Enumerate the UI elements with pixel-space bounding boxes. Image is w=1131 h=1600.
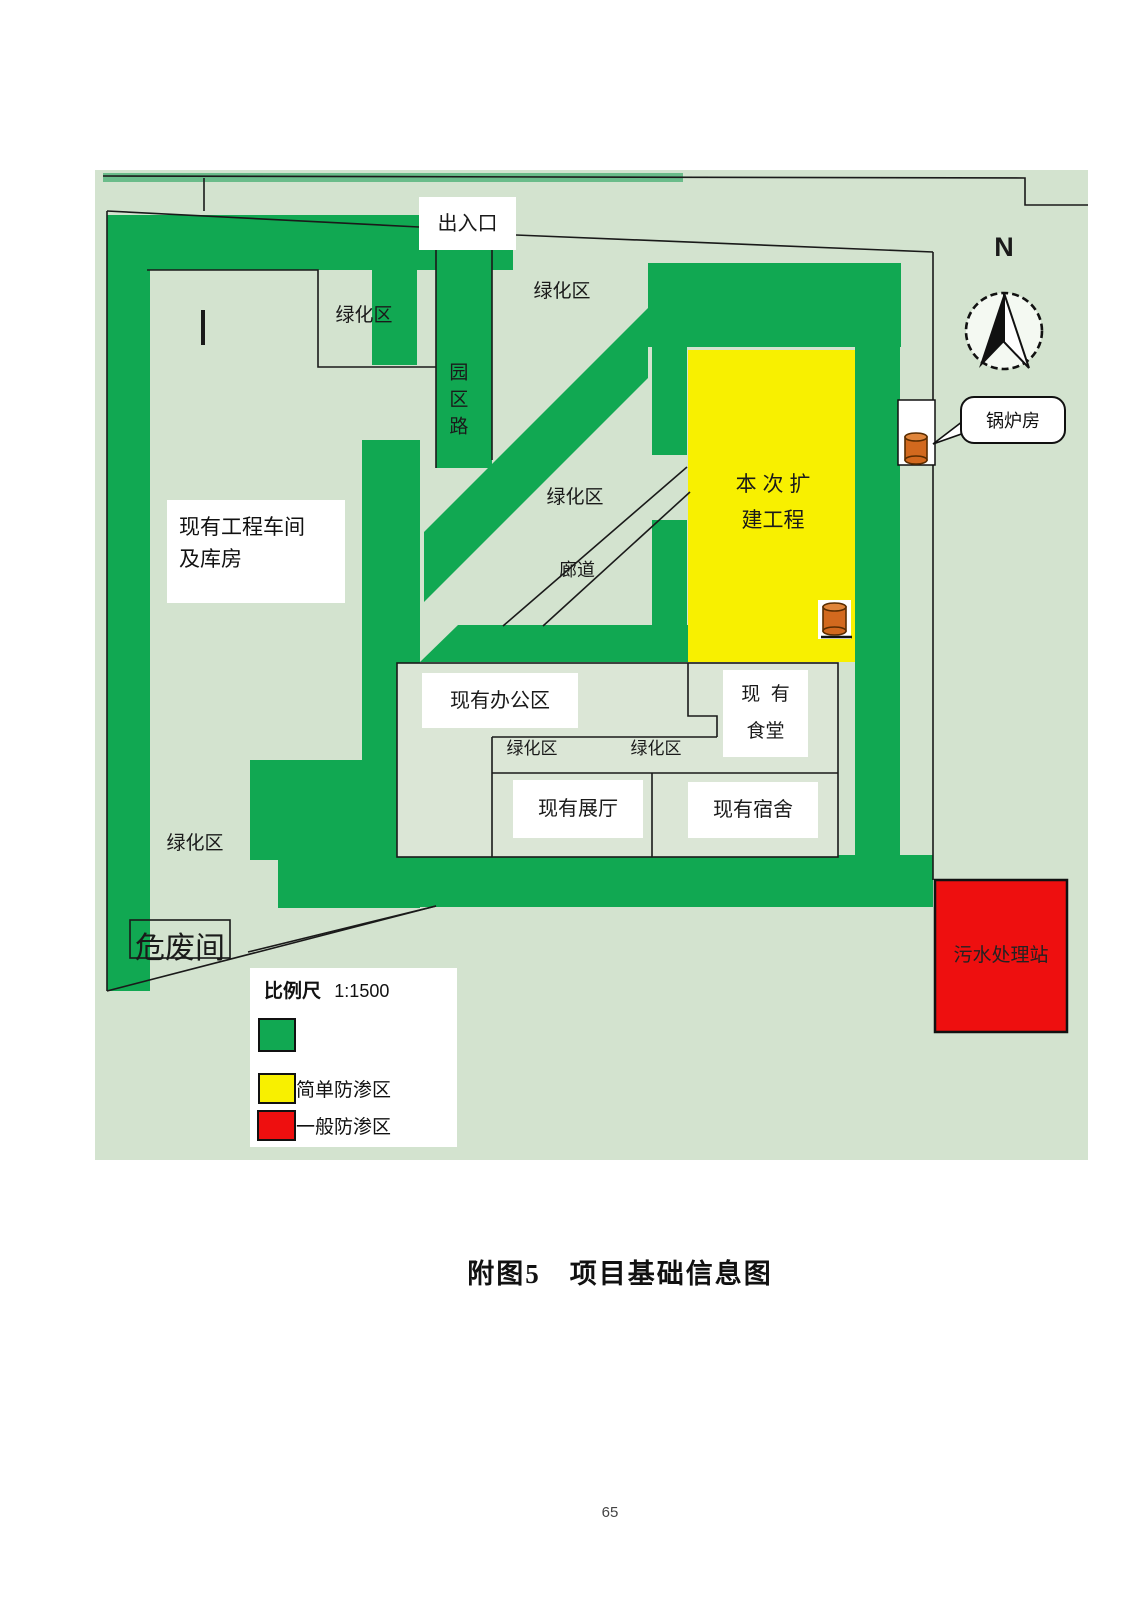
- boiler-tank-bottom: [905, 456, 927, 464]
- green-area-label-row-right: 绿化区: [619, 738, 693, 760]
- legend-red-swatch: [257, 1110, 296, 1141]
- legend-scale-label: 比例尺: [264, 981, 321, 1002]
- workshop-label-line1: 现有工程车间: [179, 512, 345, 544]
- green-area-label-topmid: 绿化区: [523, 280, 601, 304]
- canteen-label: 现 有 食堂: [723, 670, 808, 757]
- expansion-label-line2: 建工程: [742, 503, 805, 539]
- office-label: 现有办公区: [422, 673, 578, 728]
- hazardous-label: 危废间: [135, 927, 265, 971]
- legend-scale-value: 1:1500: [334, 981, 389, 1001]
- legend-yellow-label: 简单防渗区: [296, 1075, 391, 1102]
- yellow-tank-top: [823, 603, 846, 611]
- exhibition-label: 现有展厅: [513, 780, 643, 838]
- compass-n-label: N: [981, 230, 1027, 264]
- green-bottom-band: [360, 855, 933, 907]
- figure-caption: 附图5 项目基础信息图: [380, 1252, 860, 1291]
- corridor-label: 廊道: [547, 560, 607, 582]
- boiler-tank-top: [905, 433, 927, 441]
- green-area-label-mid: 绿化区: [535, 486, 615, 510]
- green-strip-yellow-left-a: [652, 347, 687, 455]
- document-page: 出入口 绿化区 绿化区 绿化区 绿化区 绿化区 绿化区 园区路 现有工程车间 及…: [0, 0, 1131, 1600]
- expansion-label: 本 次 扩 建工程: [693, 465, 853, 541]
- green-strip-above-rooms: [420, 625, 688, 662]
- legend-scale-row: 比例尺 1:1500: [264, 976, 389, 1003]
- legend-green-swatch: [258, 1018, 296, 1052]
- yellow-tank-bottom: [823, 627, 846, 635]
- workshop-label-line2: 及库房: [179, 544, 345, 576]
- green-left-band: [107, 215, 150, 991]
- expansion-label-line1: 本 次 扩: [736, 467, 811, 503]
- dormitory-label: 现有宿舍: [688, 782, 818, 838]
- green-strip-yellow-left-b: [652, 520, 687, 662]
- green-area-label-topleft: 绿化区: [325, 304, 403, 328]
- legend-yellow-swatch: [258, 1073, 296, 1104]
- entrance-label: 出入口: [419, 197, 516, 250]
- green-right-band: [855, 347, 900, 857]
- workshop-label-box: 现有工程车间 及库房: [167, 500, 345, 603]
- page-number: 65: [560, 1504, 660, 1521]
- sewage-label: 污水处理站: [935, 880, 1067, 1032]
- legend: 比例尺 1:1500 简单防渗区 一般防渗区: [250, 968, 457, 1147]
- green-topright-band: [648, 263, 901, 347]
- compass: [966, 293, 1042, 369]
- boiler-label: 锅炉房: [960, 396, 1066, 444]
- canteen-label-line1: 现 有: [741, 677, 790, 713]
- green-area-label-row-left: 绿化区: [495, 738, 569, 760]
- site-plan-map: 出入口 绿化区 绿化区 绿化区 绿化区 绿化区 绿化区 园区路 现有工程车间 及…: [95, 170, 1088, 1160]
- canteen-label-line2: 食堂: [746, 714, 784, 750]
- legend-red-label: 一般防渗区: [296, 1112, 391, 1139]
- road-label: 园区路: [439, 350, 473, 454]
- green-area-label-bottomleft: 绿化区: [153, 832, 237, 856]
